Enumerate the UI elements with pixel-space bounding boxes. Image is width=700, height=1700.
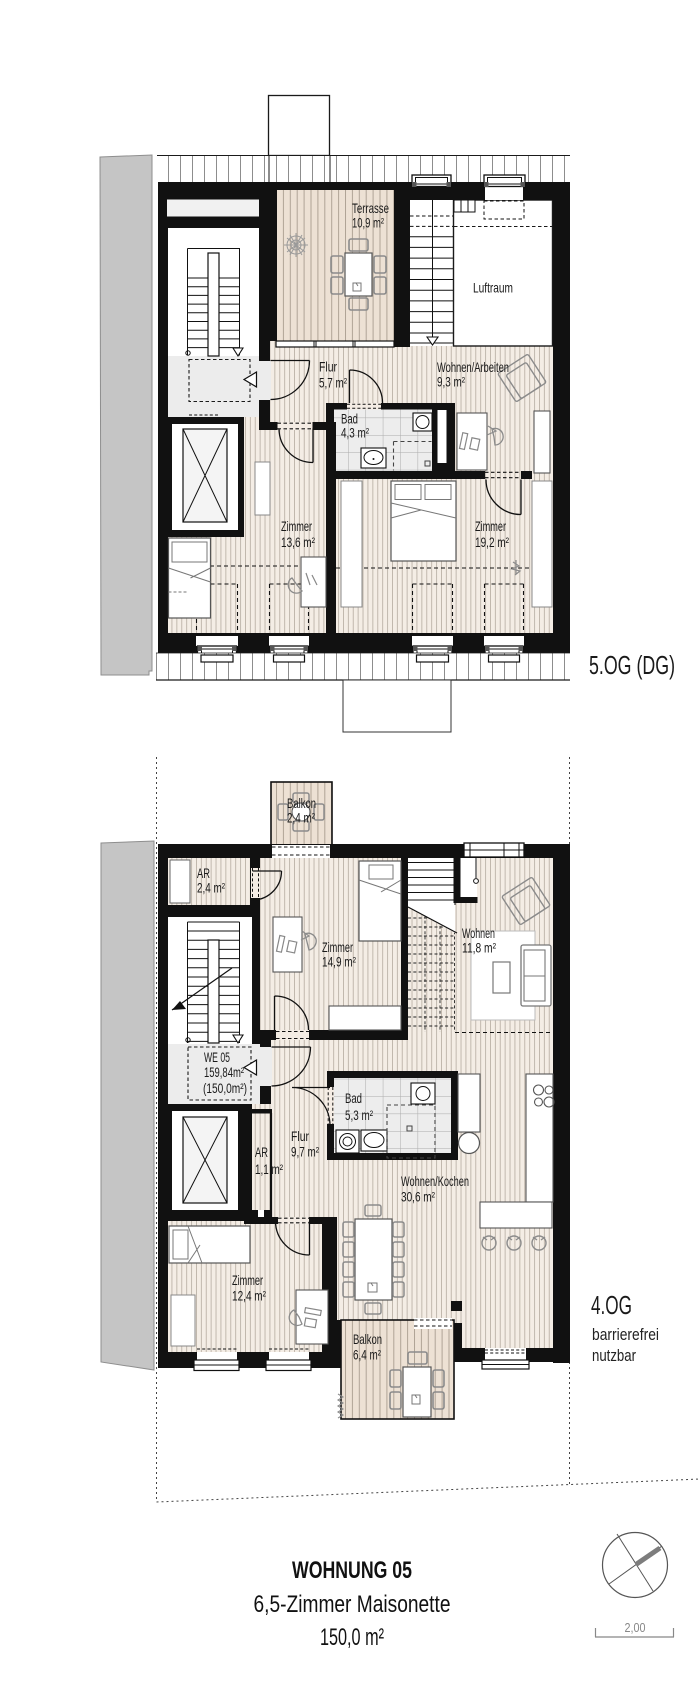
svg-text:4,3 m²: 4,3 m²	[341, 425, 369, 441]
svg-text:Balkon: Balkon	[353, 1331, 382, 1347]
svg-text:Zimmer: Zimmer	[232, 1272, 263, 1288]
svg-text:1,1 m²: 1,1 m²	[255, 1161, 283, 1177]
svg-text:9,3 m²: 9,3 m²	[437, 374, 465, 390]
svg-text:Wohnen/Kochen: Wohnen/Kochen	[401, 1173, 469, 1189]
svg-text:barrierefrei: barrierefrei	[592, 1325, 659, 1344]
svg-text:6,4 m²: 6,4 m²	[353, 1347, 381, 1363]
svg-text:Zimmer: Zimmer	[281, 518, 312, 534]
svg-text:2,4 m²: 2,4 m²	[287, 810, 315, 826]
svg-text:6,5-Zimmer Maisonette: 6,5-Zimmer Maisonette	[254, 1591, 451, 1618]
svg-text:AR: AR	[255, 1144, 268, 1160]
svg-text:2,4 m²: 2,4 m²	[197, 880, 225, 896]
svg-text:159,84m²: 159,84m²	[204, 1064, 244, 1080]
svg-text:Luftraum: Luftraum	[473, 280, 513, 296]
svg-text:13,6 m²: 13,6 m²	[281, 534, 315, 550]
svg-text:150,0 m²: 150,0 m²	[320, 1624, 384, 1651]
svg-text:Bad: Bad	[345, 1090, 362, 1106]
svg-text:12,4 m²: 12,4 m²	[232, 1288, 266, 1304]
svg-text:5,7 m²: 5,7 m²	[319, 375, 347, 391]
svg-text:(150,0m²): (150,0m²)	[203, 1080, 247, 1096]
svg-text:WE 05: WE 05	[204, 1049, 230, 1065]
svg-text:Flur: Flur	[291, 1128, 309, 1144]
svg-text:19,2 m²: 19,2 m²	[475, 534, 509, 550]
svg-text:2,00: 2,00	[625, 1620, 646, 1635]
svg-text:10,9 m²: 10,9 m²	[352, 215, 384, 231]
svg-text:5.OG (DG): 5.OG (DG)	[589, 650, 675, 680]
svg-text:Flur: Flur	[319, 359, 337, 375]
svg-text:30,6 m²: 30,6 m²	[401, 1189, 435, 1205]
svg-text:11,8 m²: 11,8 m²	[462, 940, 496, 956]
svg-text:WOHNUNG 05: WOHNUNG 05	[292, 1557, 412, 1584]
svg-text:5,3 m²: 5,3 m²	[345, 1107, 373, 1123]
svg-text:14,9 m²: 14,9 m²	[322, 954, 356, 970]
svg-text:nutzbar: nutzbar	[592, 1346, 636, 1365]
svg-text:Zimmer: Zimmer	[475, 518, 506, 534]
svg-text:4.OG: 4.OG	[591, 1290, 632, 1320]
svg-text:9,7 m²: 9,7 m²	[291, 1144, 319, 1160]
